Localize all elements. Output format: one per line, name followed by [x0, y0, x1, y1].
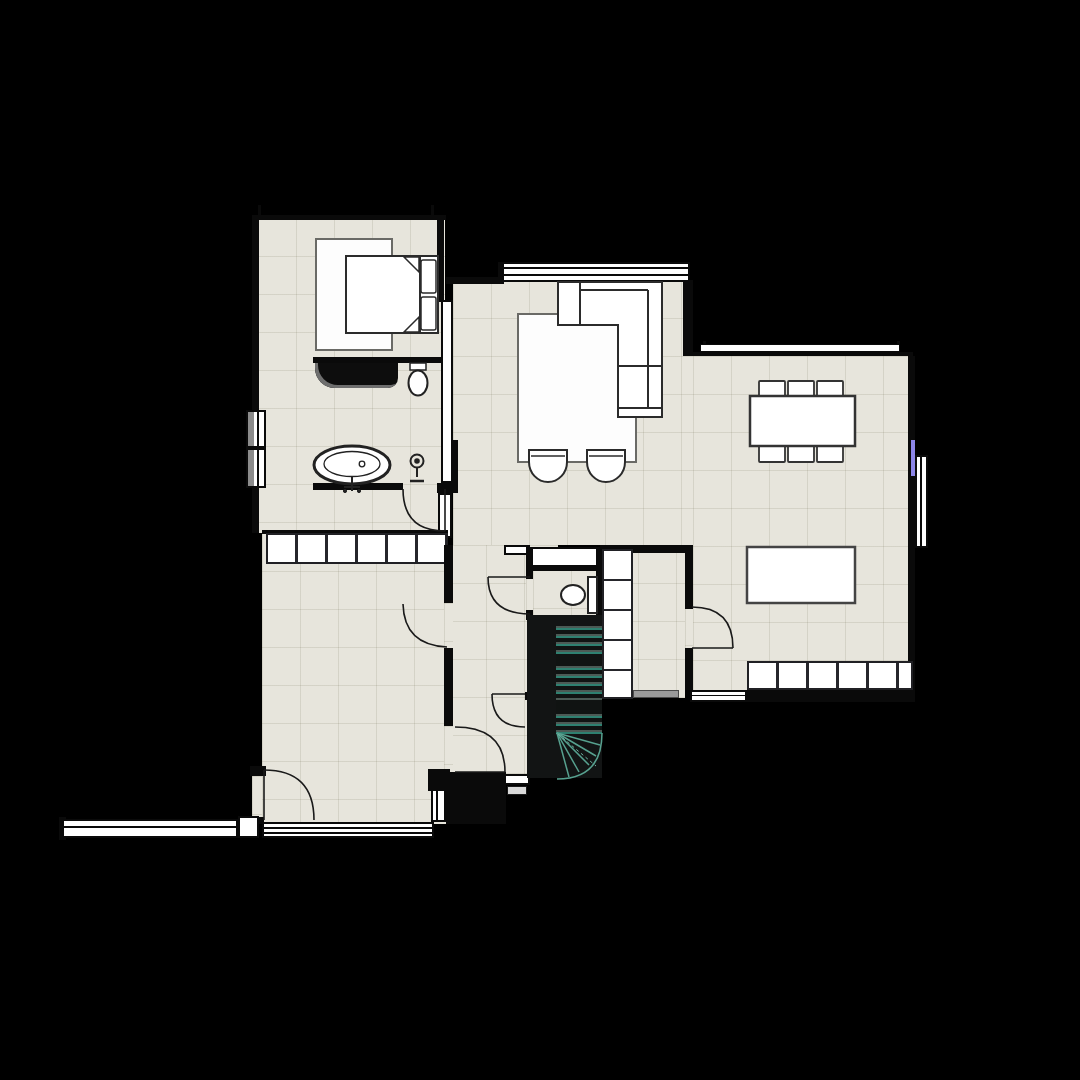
dining-west-wall-lower — [685, 648, 693, 690]
dining-east-wall — [908, 356, 915, 690]
hall-west-wall-upper — [444, 545, 453, 603]
floor-patch — [252, 776, 262, 818]
hall-west-wall-mid — [444, 648, 453, 726]
floor-plan-canvas — [0, 0, 1080, 1080]
stair-treads — [556, 626, 602, 734]
wc-west-wall-upper — [526, 547, 533, 579]
dining-south-window — [690, 690, 747, 702]
exterior-strip-pier — [238, 816, 259, 838]
floor-patch — [526, 577, 533, 612]
living-north-window — [502, 262, 690, 282]
wardrobe-cells — [266, 533, 448, 564]
cabinet-row — [747, 661, 913, 690]
entry-sidelight-window — [431, 789, 446, 822]
bed-bath-east-wall — [437, 215, 444, 302]
vanity-counter — [315, 363, 398, 388]
utility-room-floor — [262, 533, 448, 824]
living-west-wall-stub — [451, 440, 458, 493]
floor-patch — [444, 603, 453, 648]
bath-east-jamb — [437, 483, 452, 493]
threshold-strip — [633, 690, 679, 698]
wc-north-wall — [529, 565, 599, 571]
exterior-wall-strip — [62, 819, 238, 838]
dining-kitchen-floor — [693, 356, 908, 690]
stair-landing-break — [556, 700, 602, 710]
living-rug — [517, 313, 637, 463]
entry-step-lower — [507, 786, 527, 795]
vestibule-south-wall — [446, 772, 506, 824]
bath-window-mullion — [246, 446, 266, 450]
closet-column-cells — [602, 549, 633, 699]
entry-corner-block — [428, 769, 450, 791]
bedroom-north-wall — [254, 215, 446, 220]
dining-east-window — [915, 455, 928, 548]
utility-door-jamb — [250, 766, 266, 776]
dining-west-wall-upper — [685, 545, 693, 609]
wc-cistern-band — [529, 547, 599, 567]
dining-north-wall — [693, 352, 913, 356]
bath-halfwall — [313, 483, 403, 490]
floor-patch — [685, 607, 693, 650]
dining-south-wall — [747, 690, 915, 702]
stair-landing-break — [556, 658, 602, 666]
dining-north-window — [700, 344, 900, 352]
bedroom-rug — [315, 238, 393, 351]
living-north-wall-stub — [446, 277, 504, 284]
west-wall-lower — [252, 488, 259, 533]
west-wall-upper — [252, 215, 259, 412]
accent-marker — [911, 440, 915, 476]
utility-south-window — [262, 822, 434, 838]
floor-patch — [444, 726, 453, 772]
living-east-wall — [683, 280, 693, 356]
